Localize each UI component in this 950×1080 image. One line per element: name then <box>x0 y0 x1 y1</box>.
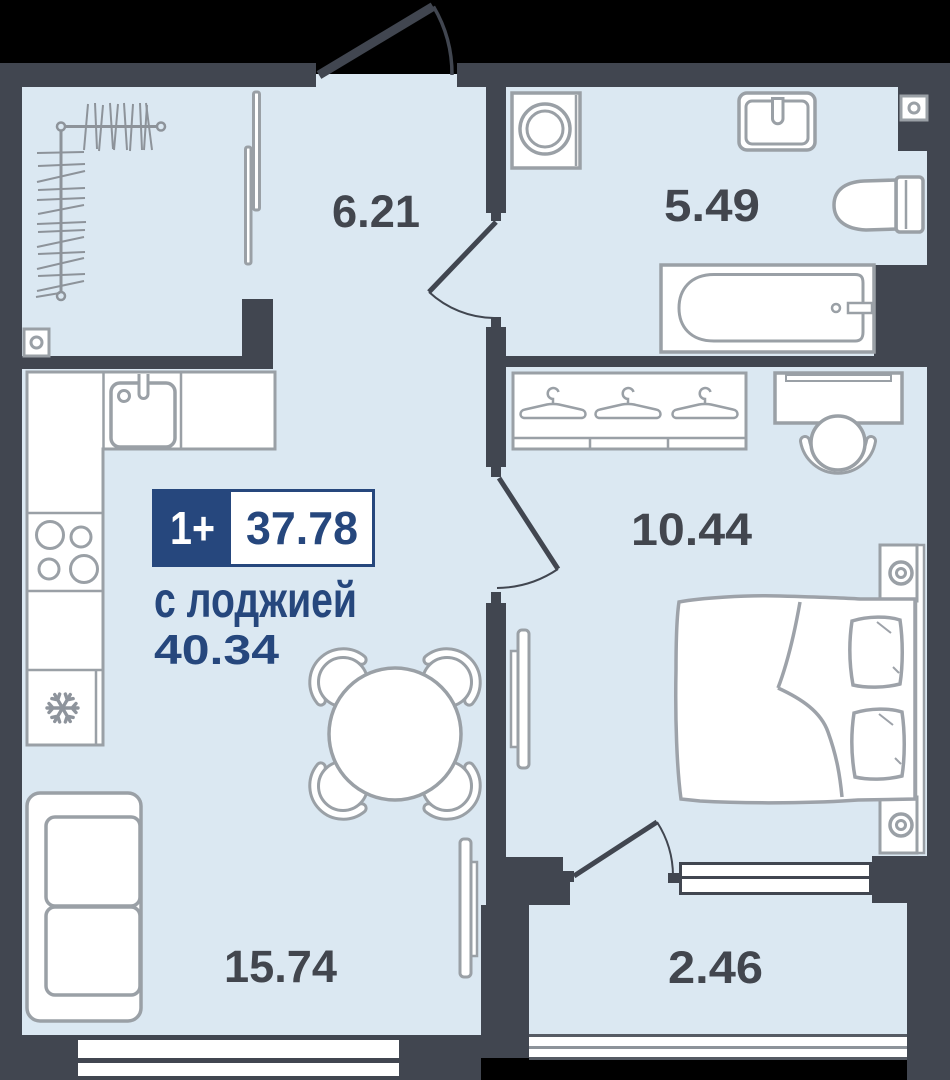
svg-text:2.46: 2.46 <box>668 942 763 993</box>
svg-text:5.49: 5.49 <box>664 180 760 231</box>
svg-text:15.74: 15.74 <box>224 941 337 992</box>
svg-text:37.78: 37.78 <box>246 502 358 554</box>
svg-text:10.44: 10.44 <box>631 504 752 555</box>
svg-text:40.34: 40.34 <box>154 626 280 673</box>
svg-text:с лоджией: с лоджией <box>154 572 357 628</box>
svg-text:6.21: 6.21 <box>332 186 420 237</box>
svg-text:1+: 1+ <box>170 502 215 554</box>
